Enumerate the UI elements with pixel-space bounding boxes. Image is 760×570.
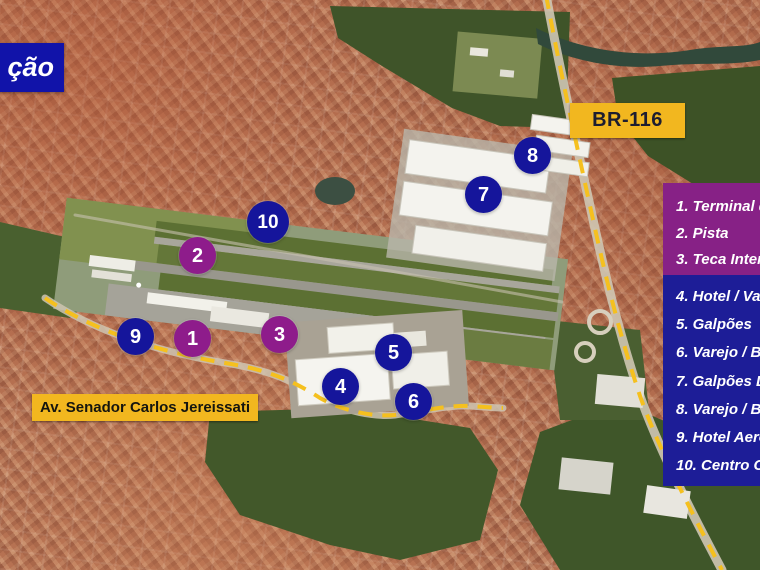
warehouse-cluster-central bbox=[285, 310, 469, 418]
satellite-map-art bbox=[0, 0, 760, 570]
map-marker-1: 1 bbox=[174, 320, 211, 357]
map-marker-2: 2 bbox=[179, 237, 216, 274]
avenue-label-text: Av. Senador Carlos Jereissati bbox=[40, 399, 250, 416]
map-marker-3: 3 bbox=[261, 316, 298, 353]
map-marker-10: 10 bbox=[247, 201, 289, 243]
avenue-label: Av. Senador Carlos Jereissati bbox=[32, 394, 258, 421]
map-marker-5: 5 bbox=[375, 334, 412, 371]
legend-item-3: 3. Teca Inter bbox=[676, 247, 760, 274]
marker-number: 10 bbox=[257, 213, 278, 232]
legend-item-10: 10. Centro C bbox=[676, 452, 760, 480]
legend-item-2: 2. Pista bbox=[676, 221, 760, 248]
legend-item-4: 4. Hotel / Va bbox=[676, 283, 760, 311]
map-marker-7: 7 bbox=[465, 176, 502, 213]
highway-label-text: BR-116 bbox=[592, 109, 663, 132]
legend-development-items: 4. Hotel / Va 5. Galpões 6. Varejo / B 7… bbox=[663, 275, 760, 486]
lake bbox=[315, 177, 355, 205]
marker-number: 1 bbox=[187, 329, 198, 349]
slide-map: 1 2 3 4 5 6 7 8 9 10 ção BR-116 Av. Sena… bbox=[0, 0, 760, 570]
map-marker-6: 6 bbox=[395, 383, 432, 420]
legend-item-6: 6. Varejo / B bbox=[676, 339, 760, 367]
river bbox=[536, 28, 760, 67]
marker-number: 4 bbox=[335, 377, 346, 397]
marker-number: 9 bbox=[130, 327, 141, 347]
legend-airport-items: 1. Terminal d 2. Pista 3. Teca Inter bbox=[663, 183, 760, 275]
marker-number: 7 bbox=[478, 185, 489, 205]
marker-number: 8 bbox=[527, 146, 538, 166]
slide-title-fragment: ção bbox=[0, 43, 64, 92]
marker-number: 2 bbox=[192, 246, 203, 266]
map-marker-4: 4 bbox=[322, 368, 359, 405]
marker-number: 5 bbox=[388, 343, 399, 363]
map-marker-9: 9 bbox=[117, 318, 154, 355]
legend-item-8: 8. Varejo / B bbox=[676, 396, 760, 424]
highway-label-br116: BR-116 bbox=[570, 103, 685, 138]
legend-item-1: 1. Terminal d bbox=[676, 194, 760, 221]
marker-number: 3 bbox=[274, 325, 285, 345]
legend-item-5: 5. Galpões bbox=[676, 311, 760, 339]
slide-title-text: ção bbox=[7, 52, 54, 83]
legend-item-7: 7. Galpões Lo bbox=[676, 368, 760, 396]
marker-number: 6 bbox=[408, 392, 419, 412]
legend-item-9: 9. Hotel Aero bbox=[676, 424, 760, 452]
map-marker-8: 8 bbox=[514, 137, 551, 174]
